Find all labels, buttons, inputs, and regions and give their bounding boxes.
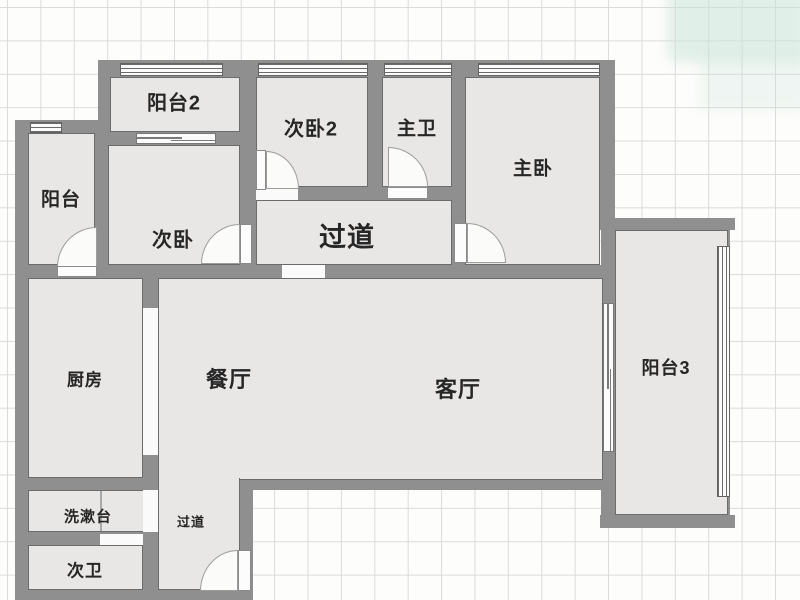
label-dining: 餐厅 [206,362,252,394]
door-bedroom2-leaf [256,150,266,190]
corner-tint-strong [668,0,800,62]
slider-balcony2-bedroom-panel-1 [137,137,182,139]
window-balcony2 [120,63,223,76]
label-master-bedroom: 主卧 [513,154,553,181]
label-kitchen: 厨房 [67,366,103,391]
door-entry-leaf [238,550,251,591]
wall-master-right [600,60,615,230]
label-bedroom2: 次卧2 [284,113,338,142]
opening-hallway-dining [282,265,325,278]
door-master-bedroom-leaf [454,223,467,263]
wall-bottom [15,590,253,600]
window-balcony3-right [717,246,730,497]
label-balcony2: 阳台2 [147,87,201,116]
label-living: 客厅 [435,372,481,404]
slider-living-balcony3 [603,303,614,452]
corner-tint-soft [700,55,800,110]
opening-kitchen-washbasin [143,490,158,532]
label-bath2: 次卫 [67,557,103,582]
door-bedroom-leaf [240,224,252,264]
label-balcony: 阳台 [41,185,81,212]
label-corridor: 过道 [177,512,205,531]
label-bedroom: 次卧 [152,224,194,253]
label-washbasin: 洗漱台 [64,506,112,527]
window-balcony-top [30,122,62,133]
slider-living-balcony3-panel-1 [607,304,609,389]
wall-bedroom2-bath [368,60,382,200]
opening-kitchen-passage [143,308,158,455]
floor-plan: 阳台2次卧2主卫主卧阳台次卧过道厨房餐厅客厅阳台3洗漱台过道次卫 [0,0,800,600]
window-master-bedroom [478,63,600,76]
wall-balcony3-top [600,218,735,230]
slider-balcony2-bedroom-panel-2 [171,140,215,142]
slider-living-balcony3-panel-2 [610,369,612,451]
label-master-bath: 主卫 [397,114,437,141]
wall-outer-left [15,120,28,600]
wall-balcony3-bottom [600,515,735,528]
door-balcony-kitchen-leaf [57,266,97,277]
door-master-bath-leaf [387,187,428,199]
patch-dining-corridor [159,477,239,480]
opening-washbasin-bath [100,534,143,545]
window-master-bath [384,63,452,76]
label-balcony3: 阳台3 [641,354,690,380]
wall-kitchen-bottom [15,478,158,490]
window-bedroom2 [258,63,368,76]
slider-balcony2-bedroom [136,133,216,144]
label-hallway: 过道 [319,216,375,255]
